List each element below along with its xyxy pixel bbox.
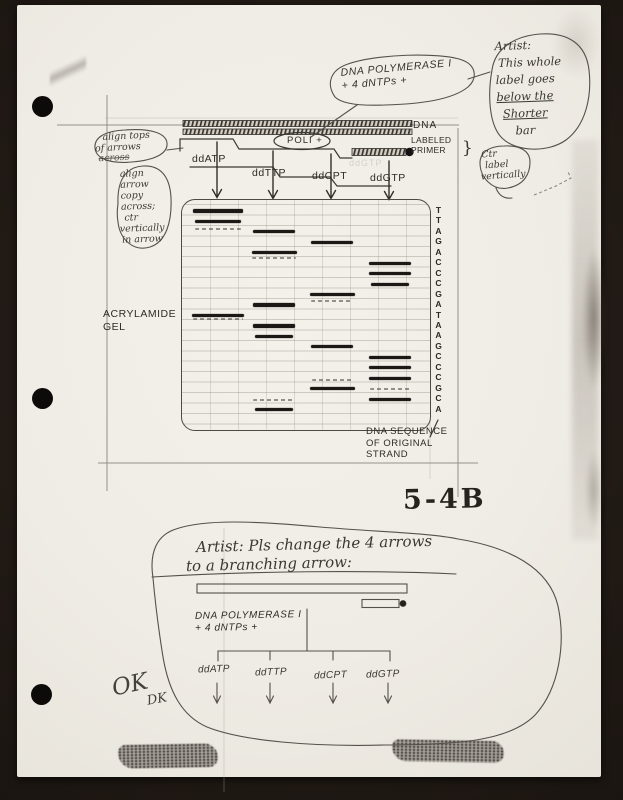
lane-label-ddttp: ddTTP <box>252 167 286 179</box>
align-arrow-note: align arrow copy across; ctr vertically … <box>120 167 165 245</box>
lane-label-ddatp: ddATP <box>192 153 226 165</box>
sequence-letter: G <box>432 236 445 246</box>
sequence-letter: C <box>432 278 445 288</box>
label-line: + 4 dNTPs + <box>195 621 302 635</box>
bottom-lane-label-ddgtp: ddGTP <box>366 668 400 680</box>
acrylamide-line: GEL <box>103 321 176 334</box>
sequence-letter: C <box>432 351 445 361</box>
gel-band <box>253 324 295 327</box>
note-line: Shorter <box>503 104 564 123</box>
photo-backdrop: TTAGACCCGATAAGCCCGCA DNA POLI + LABELED … <box>0 0 623 800</box>
gel-band-faint <box>193 318 243 320</box>
gel-band <box>311 241 353 244</box>
gel-band <box>252 251 297 254</box>
sequence-letter: G <box>432 341 445 351</box>
gel-band <box>310 293 355 296</box>
gel-band <box>369 356 411 359</box>
sequence-letter: T <box>432 215 445 225</box>
branching-arrow-bar <box>218 651 390 661</box>
note-line: below the <box>496 87 563 106</box>
sequence-letter: A <box>432 247 445 257</box>
dna-strand-bar <box>183 121 412 127</box>
gel-band <box>255 335 293 338</box>
gel-band <box>310 387 355 390</box>
artist-note-top: Artist: This whole label goes below the … <box>494 36 564 140</box>
note-line: in arrow <box>122 233 165 245</box>
sequence-letter: G <box>432 289 445 299</box>
sketch-primer-bar <box>362 600 399 608</box>
bottom-lane-label-ddcpt: ddCPT <box>314 669 347 681</box>
gel-band <box>369 262 411 265</box>
stray-pen-mark <box>534 172 571 195</box>
sequence-letter: C <box>432 362 445 372</box>
gel-band-faint <box>195 228 241 230</box>
gel-band <box>255 408 293 411</box>
labeled-primer-line: PRIMER <box>411 146 451 156</box>
poli-label: POLI + <box>287 135 323 146</box>
sequence-letter: A <box>432 404 445 414</box>
bottom-polymerase-label: DNA POLYMERASE I + 4 dNTPs + <box>195 609 302 635</box>
sequence-letter: C <box>432 372 445 382</box>
gel-band <box>193 209 243 212</box>
bottom-lane-label-ddatp: ddATP <box>198 663 230 675</box>
sequence-letter: A <box>432 330 445 340</box>
gel-band <box>311 345 353 348</box>
gel-band <box>253 230 295 233</box>
strand-step-line <box>190 167 391 186</box>
gel-band <box>369 366 411 369</box>
branch-arrow <box>330 683 337 703</box>
gel-band <box>371 283 409 286</box>
gel-band-faint <box>253 399 295 401</box>
dna-strand-bar <box>183 129 412 135</box>
lane-arrow-ddatp <box>213 142 222 198</box>
sequence-letter: C <box>432 268 445 278</box>
gel-band <box>195 220 241 223</box>
sequence-note-line: DNA SEQUENCE <box>366 426 448 438</box>
gel-band <box>369 272 411 275</box>
sequence-letter: C <box>432 393 445 403</box>
gel-band <box>369 398 411 401</box>
lane-label-ddcpt: ddCPT <box>312 170 347 182</box>
lane-label-ddgtp: ddGTP <box>370 172 406 184</box>
erased-ghost-label: ddGTP <box>349 158 383 168</box>
gel-band-faint <box>312 379 352 381</box>
branch-arrow <box>385 683 392 703</box>
gel-band <box>369 377 411 380</box>
sketch-dna-bar <box>197 584 407 593</box>
primer-bracket: } <box>462 138 473 158</box>
acrylamide-gel-label: ACRYLAMIDE GEL <box>103 308 176 333</box>
branch-arrow <box>214 683 221 703</box>
bottom-lane-label-ddttp: ddTTP <box>255 666 287 678</box>
gel-band-faint <box>311 300 353 302</box>
sequence-note-line: OF ORIGINAL <box>366 438 448 450</box>
sequence-letter: G <box>432 383 445 393</box>
dna-sequence-note: DNA SEQUENCE OF ORIGINAL STRAND <box>366 426 448 461</box>
label-line: DNA POLYMERASE I <box>195 609 302 623</box>
ctr-label-note: Ctr label vertically <box>481 147 526 183</box>
sequence-letter: C <box>432 257 445 267</box>
note-line: bar <box>515 121 564 140</box>
labeled-primer-label: LABELED PRIMER <box>411 136 451 155</box>
primer-bar <box>352 149 406 156</box>
gel-band <box>192 314 244 317</box>
dna-label: DNA <box>413 120 437 131</box>
sequence-letter: T <box>432 205 445 215</box>
bubble-connector <box>468 72 490 79</box>
sequence-letter: T <box>432 310 445 320</box>
sketch-primer-dot <box>400 601 406 607</box>
sequence-letter: A <box>432 320 445 330</box>
sequence-letter: A <box>432 299 445 309</box>
acrylamide-line: ACRYLAMIDE <box>103 308 176 321</box>
align-tops-note: align tops of arrows across <box>94 131 151 165</box>
gel-band-faint <box>370 388 410 390</box>
sequence-note-line: STRAND <box>366 449 448 461</box>
sequence-letter: A <box>432 226 445 236</box>
branch-arrow <box>267 683 274 703</box>
gel-band <box>253 303 295 306</box>
gel-band-faint <box>252 257 296 259</box>
acrylamide-gel <box>181 199 431 431</box>
figure-number: 5-4B <box>403 483 487 515</box>
